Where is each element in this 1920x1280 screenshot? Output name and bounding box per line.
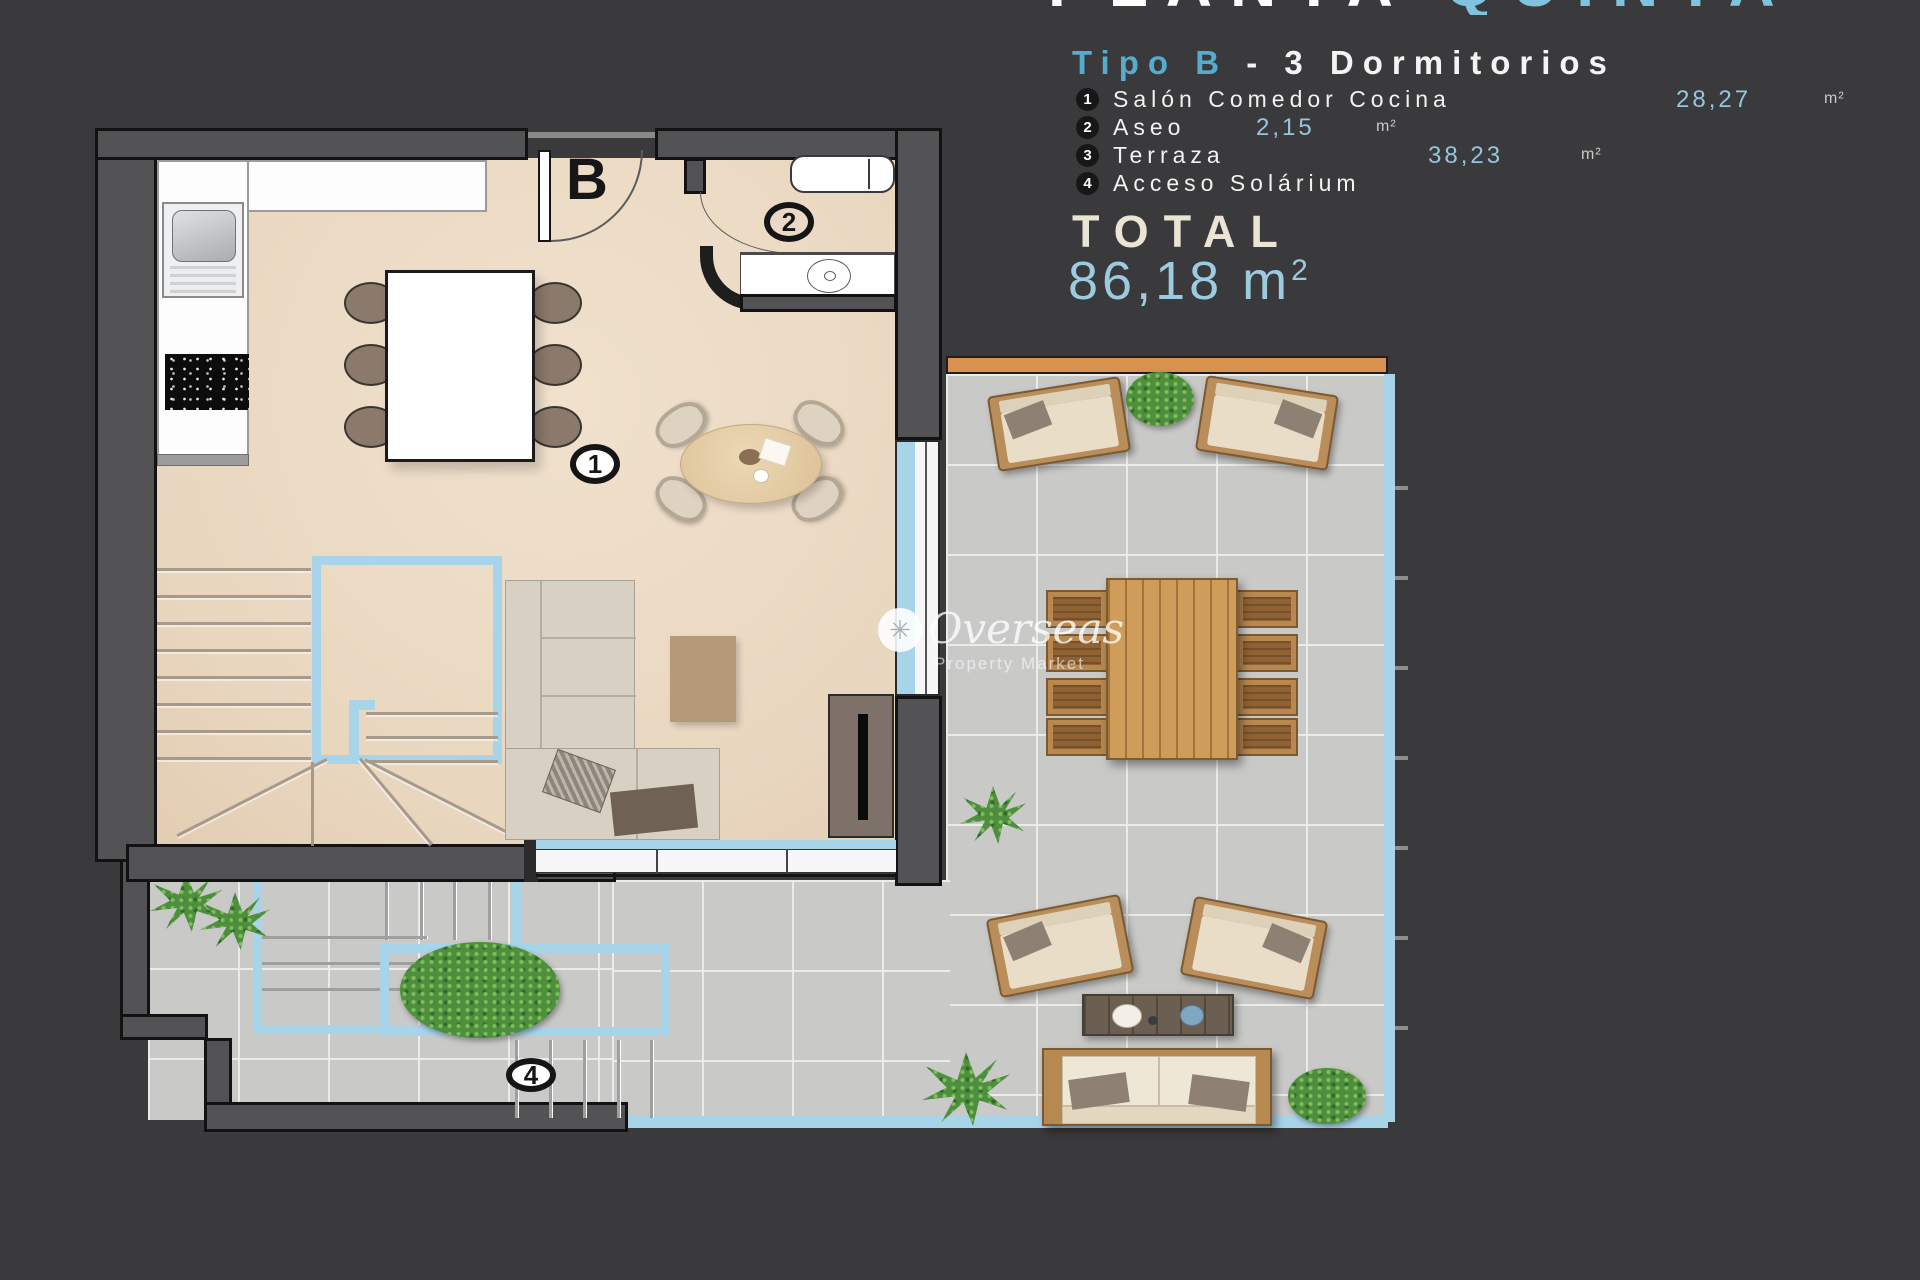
legend: 1Salón Comedor Cocina 28,27 m² 2Aseo 2,1…: [1076, 86, 1451, 198]
table-decor-cup: [753, 469, 769, 483]
side-table: [670, 636, 736, 722]
legend-row-terraza: 3Terraza 38,23 m²: [1076, 142, 1451, 170]
watermark-sun-icon: ✳: [878, 608, 922, 652]
kitchen-hob: [165, 354, 249, 410]
stair-step-line: [157, 568, 311, 571]
coffee-table-plate: [1112, 1004, 1142, 1028]
stair-step-line: [650, 1040, 653, 1118]
coffee-table-bowl: [1180, 1005, 1204, 1026]
title-quinta: QUINTA: [1444, 0, 1793, 15]
coffee-table-item: [1148, 1016, 1158, 1025]
stairwell-railing-notch-top: [349, 700, 375, 710]
stair-step-line: [366, 712, 498, 715]
exterior-wall-bottom: [204, 1102, 628, 1132]
sink-drainer: [170, 266, 236, 294]
outdoor-chair-seat: [1243, 685, 1291, 709]
outdoor-chair: [1046, 718, 1108, 756]
stair-step-line: [157, 757, 311, 760]
outdoor-chair: [1236, 718, 1298, 756]
bathroom-shower: [790, 155, 895, 193]
exterior-wall-left: [120, 856, 150, 1032]
sink-basin: [172, 210, 236, 262]
watermark-name: Overseas: [928, 604, 1124, 653]
stair-step-line: [157, 730, 311, 733]
legend-row-salon: 1Salón Comedor Cocina 28,27 m²: [1076, 86, 1451, 114]
planter-bush: [400, 942, 560, 1038]
outdoor-chair-seat: [1243, 597, 1291, 621]
title-planta: PLANTA: [1048, 0, 1408, 15]
terrace-top-deck-strip: [946, 356, 1388, 374]
stair-step-line: [157, 595, 311, 598]
door-opening-lintel: [528, 132, 655, 138]
exterior-wall-step: [120, 1014, 208, 1040]
bathroom-sink-drain: [824, 271, 836, 281]
stair-step-line: [157, 622, 311, 625]
glass-door-mullion: [786, 849, 788, 873]
outdoor-chair-seat: [1053, 685, 1101, 709]
subtitle-rest: - 3 Dormitorios: [1228, 44, 1616, 81]
coffee-table: [1082, 994, 1234, 1036]
sofa-cushion-line: [540, 581, 542, 755]
stair-step-line: [157, 649, 311, 652]
round-dining-table: [680, 424, 822, 504]
railing-tick-marks: [1395, 400, 1408, 1100]
terrace-right-railing: [1384, 374, 1395, 1122]
door-label-B: B: [566, 146, 608, 213]
sofa-back-section: [505, 580, 635, 756]
terrace-plant-top: [1126, 372, 1194, 426]
total-unit: m: [1242, 251, 1291, 311]
legend-unit-salon: m²: [1824, 90, 1845, 108]
apartment-wall-top-left: [95, 128, 528, 160]
legend-label-aseo: Aseo: [1113, 114, 1185, 140]
room-label-4: 4: [506, 1058, 556, 1092]
legend-label-terraza: Terraza: [1113, 142, 1225, 168]
entry-door-leaf: [538, 150, 551, 242]
outdoor-chair: [1236, 634, 1298, 672]
legend-unit-aseo: m²: [1376, 118, 1397, 136]
apartment-wall-right-lower: [895, 696, 942, 886]
total-value: 86,18 m2: [1068, 250, 1312, 312]
bathroom-wall-stub: [684, 158, 706, 194]
floorplan-page: PLANTA QUINTA Tipo B - 3 Dormitorios 1Sa…: [0, 0, 1920, 1280]
stair-step-line: [262, 936, 427, 939]
tv-screen: [858, 714, 868, 820]
room-label-1: 1: [570, 444, 620, 484]
sliding-glass-door: [536, 840, 896, 880]
legend-bullet-1: 1: [1076, 88, 1099, 111]
glass-door-glass: [536, 840, 896, 849]
plan-subtitle: Tipo B - 3 Dormitorios: [1072, 44, 1616, 82]
stair-step-line: [157, 703, 311, 706]
stair-step-line: [157, 676, 311, 679]
page-title-text: PLANTA QUINTA: [1048, 0, 1848, 15]
legend-area-salon: 28,27: [1676, 86, 1751, 114]
legend-bullet-4: 4: [1076, 172, 1099, 195]
stair-edge-line: [311, 762, 314, 844]
legend-row-solarium: 4Acceso Solárium: [1076, 170, 1451, 198]
kitchen-sink: [162, 202, 244, 298]
glass-door-mullion: [656, 849, 658, 873]
terrace-sofa: [1042, 1048, 1272, 1126]
outdoor-chair-seat: [1053, 725, 1101, 749]
stair-step-line: [617, 1040, 620, 1118]
outdoor-chair-seat: [1243, 641, 1291, 665]
terrace-plant-sofa-right: [1288, 1068, 1366, 1124]
island-chair: [528, 344, 582, 386]
outdoor-chair: [1236, 590, 1298, 628]
island-chair: [528, 282, 582, 324]
outdoor-chair: [1046, 678, 1108, 716]
sofa-cushion-line: [542, 637, 636, 639]
apartment-wall-right-upper: [895, 128, 942, 440]
page-title: PLANTA QUINTA: [1048, 0, 1848, 15]
legend-bullet-3: 3: [1076, 144, 1099, 167]
bathroom-counter: [740, 252, 895, 296]
total-sup: 2: [1291, 254, 1312, 287]
legend-label-salon: Salón Comedor Cocina: [1113, 86, 1451, 112]
kitchen-island-table: [385, 270, 535, 462]
legend-bullet-2: 2: [1076, 116, 1099, 139]
apartment-wall-left: [95, 128, 157, 862]
legend-area-terraza: 38,23: [1428, 142, 1503, 170]
legend-unit-terraza: m²: [1581, 146, 1602, 164]
watermark-tagline: Property Market: [934, 654, 1085, 674]
tv-unit: [828, 694, 894, 838]
subtitle-type: Tipo B: [1072, 44, 1228, 81]
sofa-cushion-line: [542, 695, 636, 697]
right-window-glass: [897, 442, 915, 694]
legend-row-aseo: 2Aseo 2,15 m²: [1076, 114, 1451, 142]
bathroom-wall-bottom: [740, 294, 897, 312]
sofa-throw-blanket: [610, 784, 698, 837]
legend-area-aseo: 2,15: [1256, 114, 1315, 142]
right-window-frame-line: [925, 442, 927, 694]
total-number: 86,18: [1068, 251, 1223, 311]
glass-door-track: [536, 874, 896, 877]
stair-step-line: [366, 736, 498, 739]
island-chair: [528, 406, 582, 448]
stairwell-railing: [312, 556, 502, 764]
outdoor-chair: [1236, 678, 1298, 716]
stair-step-line: [583, 1040, 586, 1118]
terrace-dining-table: [1106, 578, 1238, 760]
kitchen-counter-end-cap: [157, 454, 249, 466]
legend-label-solarium: Acceso Solárium: [1113, 170, 1361, 196]
stair-step-line: [366, 760, 498, 763]
room-label-2: 2: [764, 202, 814, 242]
glass-door-frame: [536, 849, 896, 873]
table-decor-napkin: [758, 437, 791, 467]
outdoor-chair-seat: [1243, 725, 1291, 749]
shower-divider: [868, 159, 870, 189]
sun-icon: ✳: [889, 615, 911, 646]
